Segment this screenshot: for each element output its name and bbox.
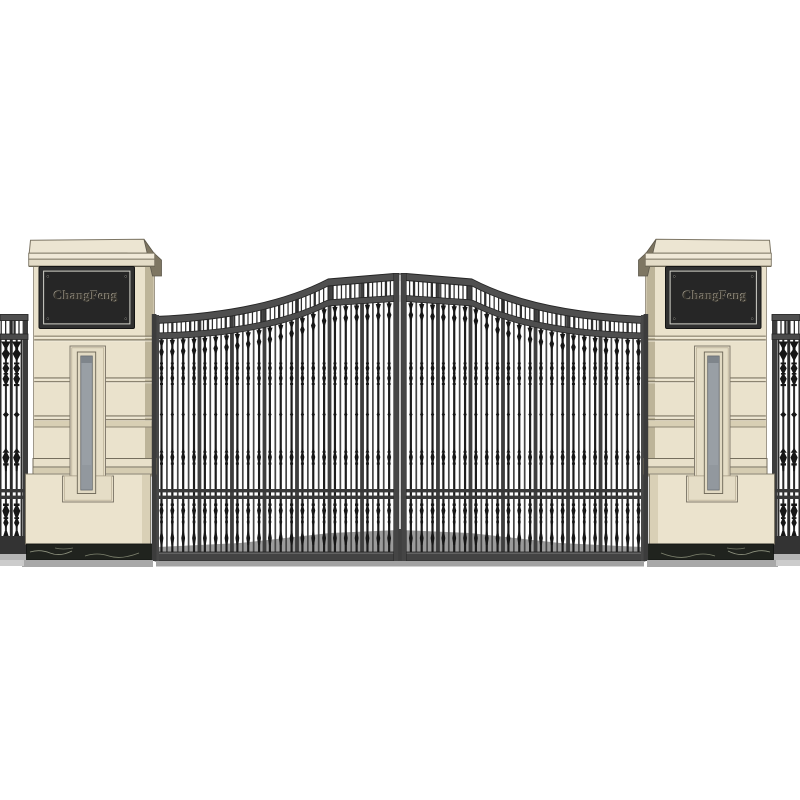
svg-text:ChangFeng: ChangFeng xyxy=(54,288,119,303)
svg-text:ChangFeng: ChangFeng xyxy=(683,288,748,303)
